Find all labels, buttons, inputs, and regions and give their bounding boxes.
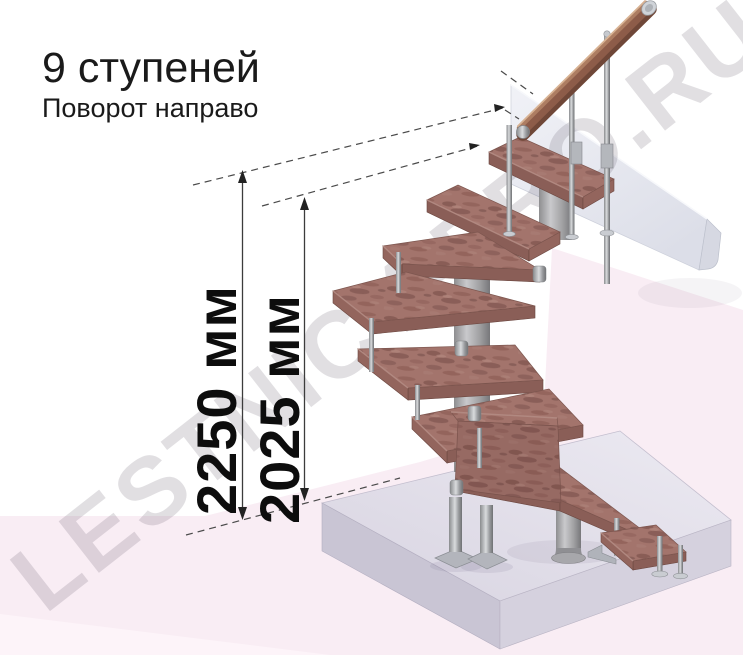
dimension-height-to-landing-label: 2025 мм: [248, 294, 311, 524]
baluster-bracket: [571, 142, 582, 164]
page-title: 9 ступеней: [42, 44, 260, 92]
baluster-rod: [507, 125, 513, 235]
title-block: 9 ступеней Поворот направо: [42, 44, 260, 123]
stair-diagram-page: LESTNICY-PRO.RU: [0, 0, 743, 655]
baluster-bracket: [601, 144, 613, 168]
stair-tread-3: [450, 412, 561, 503]
dimension-overall-height-label: 2250 мм: [185, 285, 248, 515]
handrail-end-cap: [517, 126, 530, 139]
stair-diagram-canvas: LESTNICY-PRO.RU: [0, 0, 743, 655]
page-subtitle: Поворот направо: [42, 93, 258, 123]
